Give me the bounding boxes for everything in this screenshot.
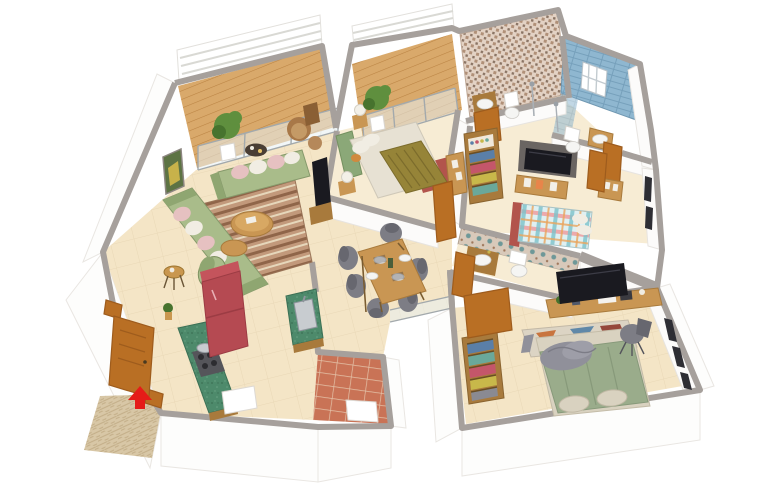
wall-art xyxy=(163,149,184,194)
master-wardrobe xyxy=(462,332,504,404)
bedroom-3-door xyxy=(587,150,607,192)
exterior-south-wall-face-utility xyxy=(318,426,391,482)
corridor-wardrobe xyxy=(464,128,503,204)
plaid-bed xyxy=(518,204,593,249)
bathroom-3-door xyxy=(452,252,475,299)
bedroom-2-door xyxy=(433,181,456,242)
orange-accent-pillow xyxy=(351,154,361,162)
orange-art-card xyxy=(535,180,543,190)
tea-table xyxy=(245,144,267,157)
desk-lamp xyxy=(639,289,645,295)
flowers xyxy=(487,250,490,253)
toilet xyxy=(564,126,580,153)
utility-balcony xyxy=(346,400,378,422)
rattan-ottoman xyxy=(308,136,322,150)
master-door xyxy=(464,288,512,338)
toilet xyxy=(504,91,519,119)
door-knob xyxy=(143,360,147,364)
tea-tray xyxy=(258,149,262,153)
washer-unit xyxy=(346,400,378,422)
floor-plan-render xyxy=(0,0,780,490)
vase xyxy=(388,258,393,268)
floor-plan-stage xyxy=(0,0,780,490)
tea-cup xyxy=(250,146,254,150)
entry-door-leaf xyxy=(109,316,154,397)
